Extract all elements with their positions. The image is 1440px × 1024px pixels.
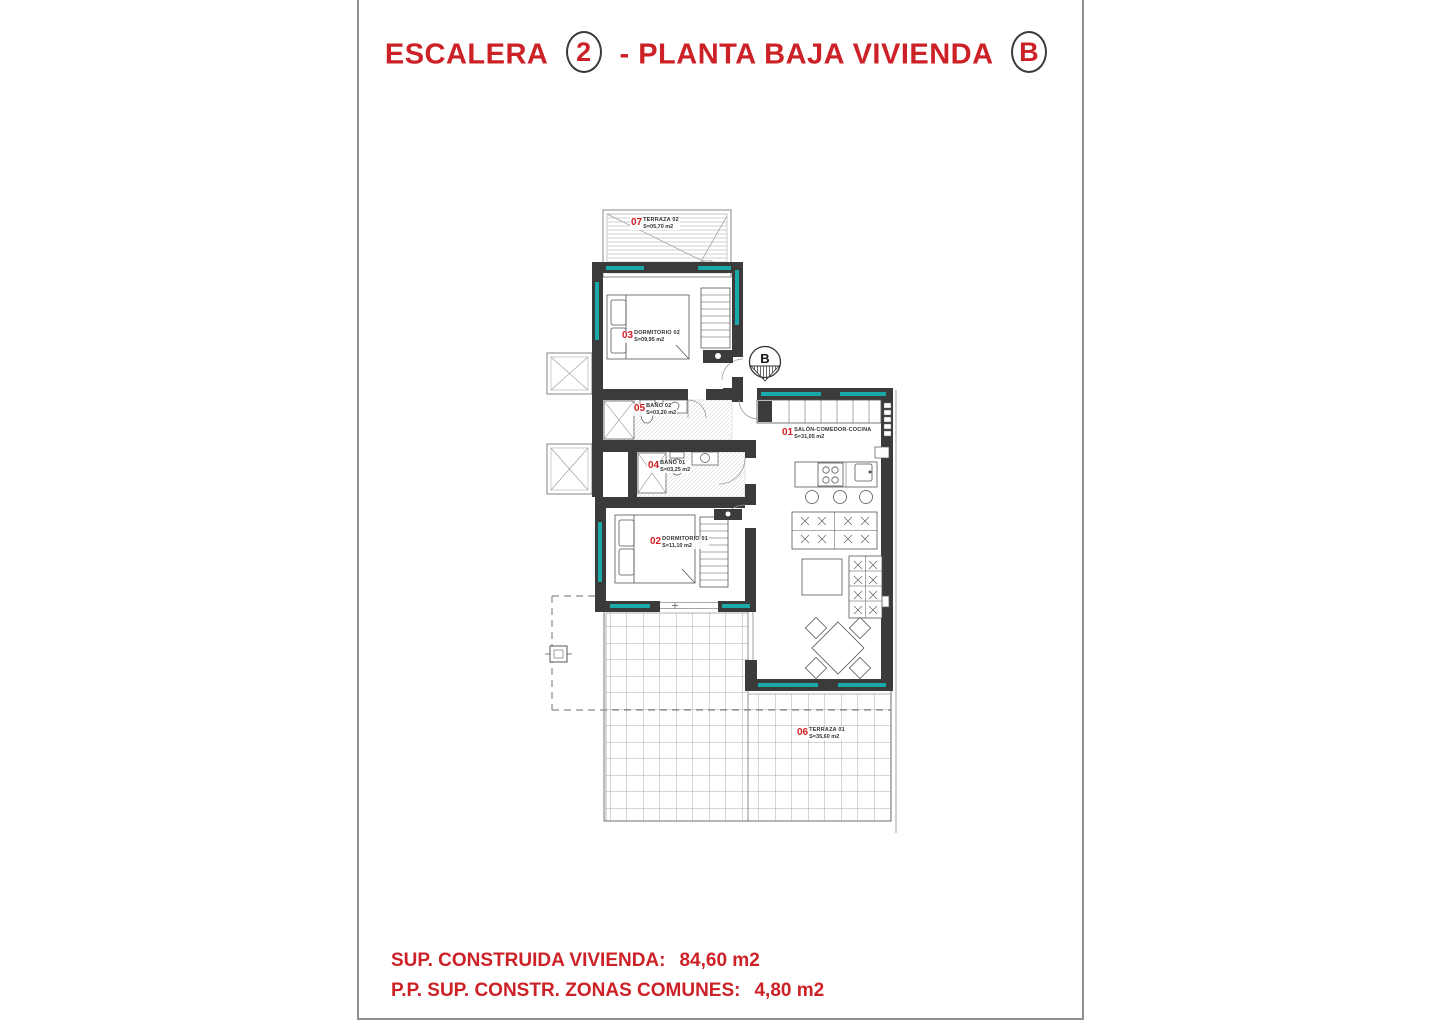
- room-number: 04: [648, 461, 659, 471]
- room-label-bano-02: 05 BAÑO 02 S=03,20 m2: [633, 404, 677, 416]
- installation-shafts: [547, 353, 592, 494]
- plan-sheet: ESCALERA 2 - PLANTA BAJA VIVIENDA B: [0, 0, 1440, 1024]
- room-name: SALÓN-COMEDOR-COCINA: [794, 428, 871, 434]
- floor-plan-svg: B: [540, 195, 905, 840]
- room-number: 03: [622, 331, 633, 341]
- surface-summary: SUP. CONSTRUIDA VIVIENDA:84,60 m2 P.P. S…: [391, 946, 824, 1006]
- room-label-terraza-02: 07 TERRAZA 02 S=05,70 m2: [630, 218, 680, 230]
- room-name: DORMITORIO 01: [662, 537, 708, 543]
- room-number: 02: [650, 537, 661, 547]
- summary-line-vivienda: SUP. CONSTRUIDA VIVIENDA:84,60 m2: [391, 946, 824, 976]
- room-number: 01: [782, 428, 793, 438]
- room-label-dormitorio-01: 02 DORMITORIO 01 S=11,10 m2: [649, 537, 709, 549]
- summary-value: 4,80 m2: [754, 980, 824, 1001]
- room-label-salon: 01 SALÓN-COMEDOR-COCINA S=31,05 m2: [781, 428, 872, 440]
- room-number: 07: [631, 218, 642, 228]
- entrance-marker: B: [750, 347, 781, 382]
- room-name: BAÑO 02: [646, 404, 676, 410]
- room-area: S=11,10 m2: [662, 544, 708, 550]
- summary-line-zonas-comunes: P.P. SUP. CONSTR. ZONAS COMUNES:4,80 m2: [391, 976, 824, 1006]
- dwelling-letter-badge: B: [1011, 31, 1047, 73]
- title-text-middle: - PLANTA BAJA VIVIENDA: [620, 39, 994, 71]
- title-text-left: ESCALERA: [385, 39, 549, 71]
- page-title: ESCALERA 2 - PLANTA BAJA VIVIENDA B: [357, 34, 1084, 76]
- bathroom-01: [637, 452, 745, 497]
- room-area: S=35,60 m2: [809, 735, 845, 741]
- room-number: 05: [634, 404, 645, 414]
- room-area: S=03,20 m2: [646, 411, 676, 417]
- room-label-terraza-01: 06 TERRAZA 01 S=35,60 m2: [796, 728, 846, 740]
- entrance-marker-letter: B: [760, 351, 769, 366]
- room-area: S=09,95 m2: [634, 338, 680, 344]
- room-area: S=03,25 m2: [660, 468, 690, 474]
- room-area: S=05,70 m2: [643, 225, 679, 231]
- summary-label: P.P. SUP. CONSTR. ZONAS COMUNES:: [391, 980, 740, 1001]
- bedroom-02-furniture: [607, 288, 733, 363]
- summary-value: 84,60 m2: [679, 950, 759, 971]
- kitchen-living-furniture: [757, 400, 882, 679]
- room-name: TERRAZA 02: [643, 218, 679, 224]
- room-area: S=31,05 m2: [794, 435, 871, 441]
- room-label-bano-01: 04 BAÑO 01 S=03,25 m2: [647, 461, 691, 473]
- room-name: DORMITORIO 02: [634, 331, 680, 337]
- room-label-dormitorio-02: 03 DORMITORIO 02 S=09,95 m2: [621, 331, 681, 343]
- room-number: 06: [797, 728, 808, 738]
- stair-number-badge: 2: [566, 31, 602, 73]
- room-name: BAÑO 01: [660, 461, 690, 467]
- room-name: TERRAZA 01: [809, 728, 845, 734]
- summary-label: SUP. CONSTRUIDA VIVIENDA:: [391, 950, 665, 971]
